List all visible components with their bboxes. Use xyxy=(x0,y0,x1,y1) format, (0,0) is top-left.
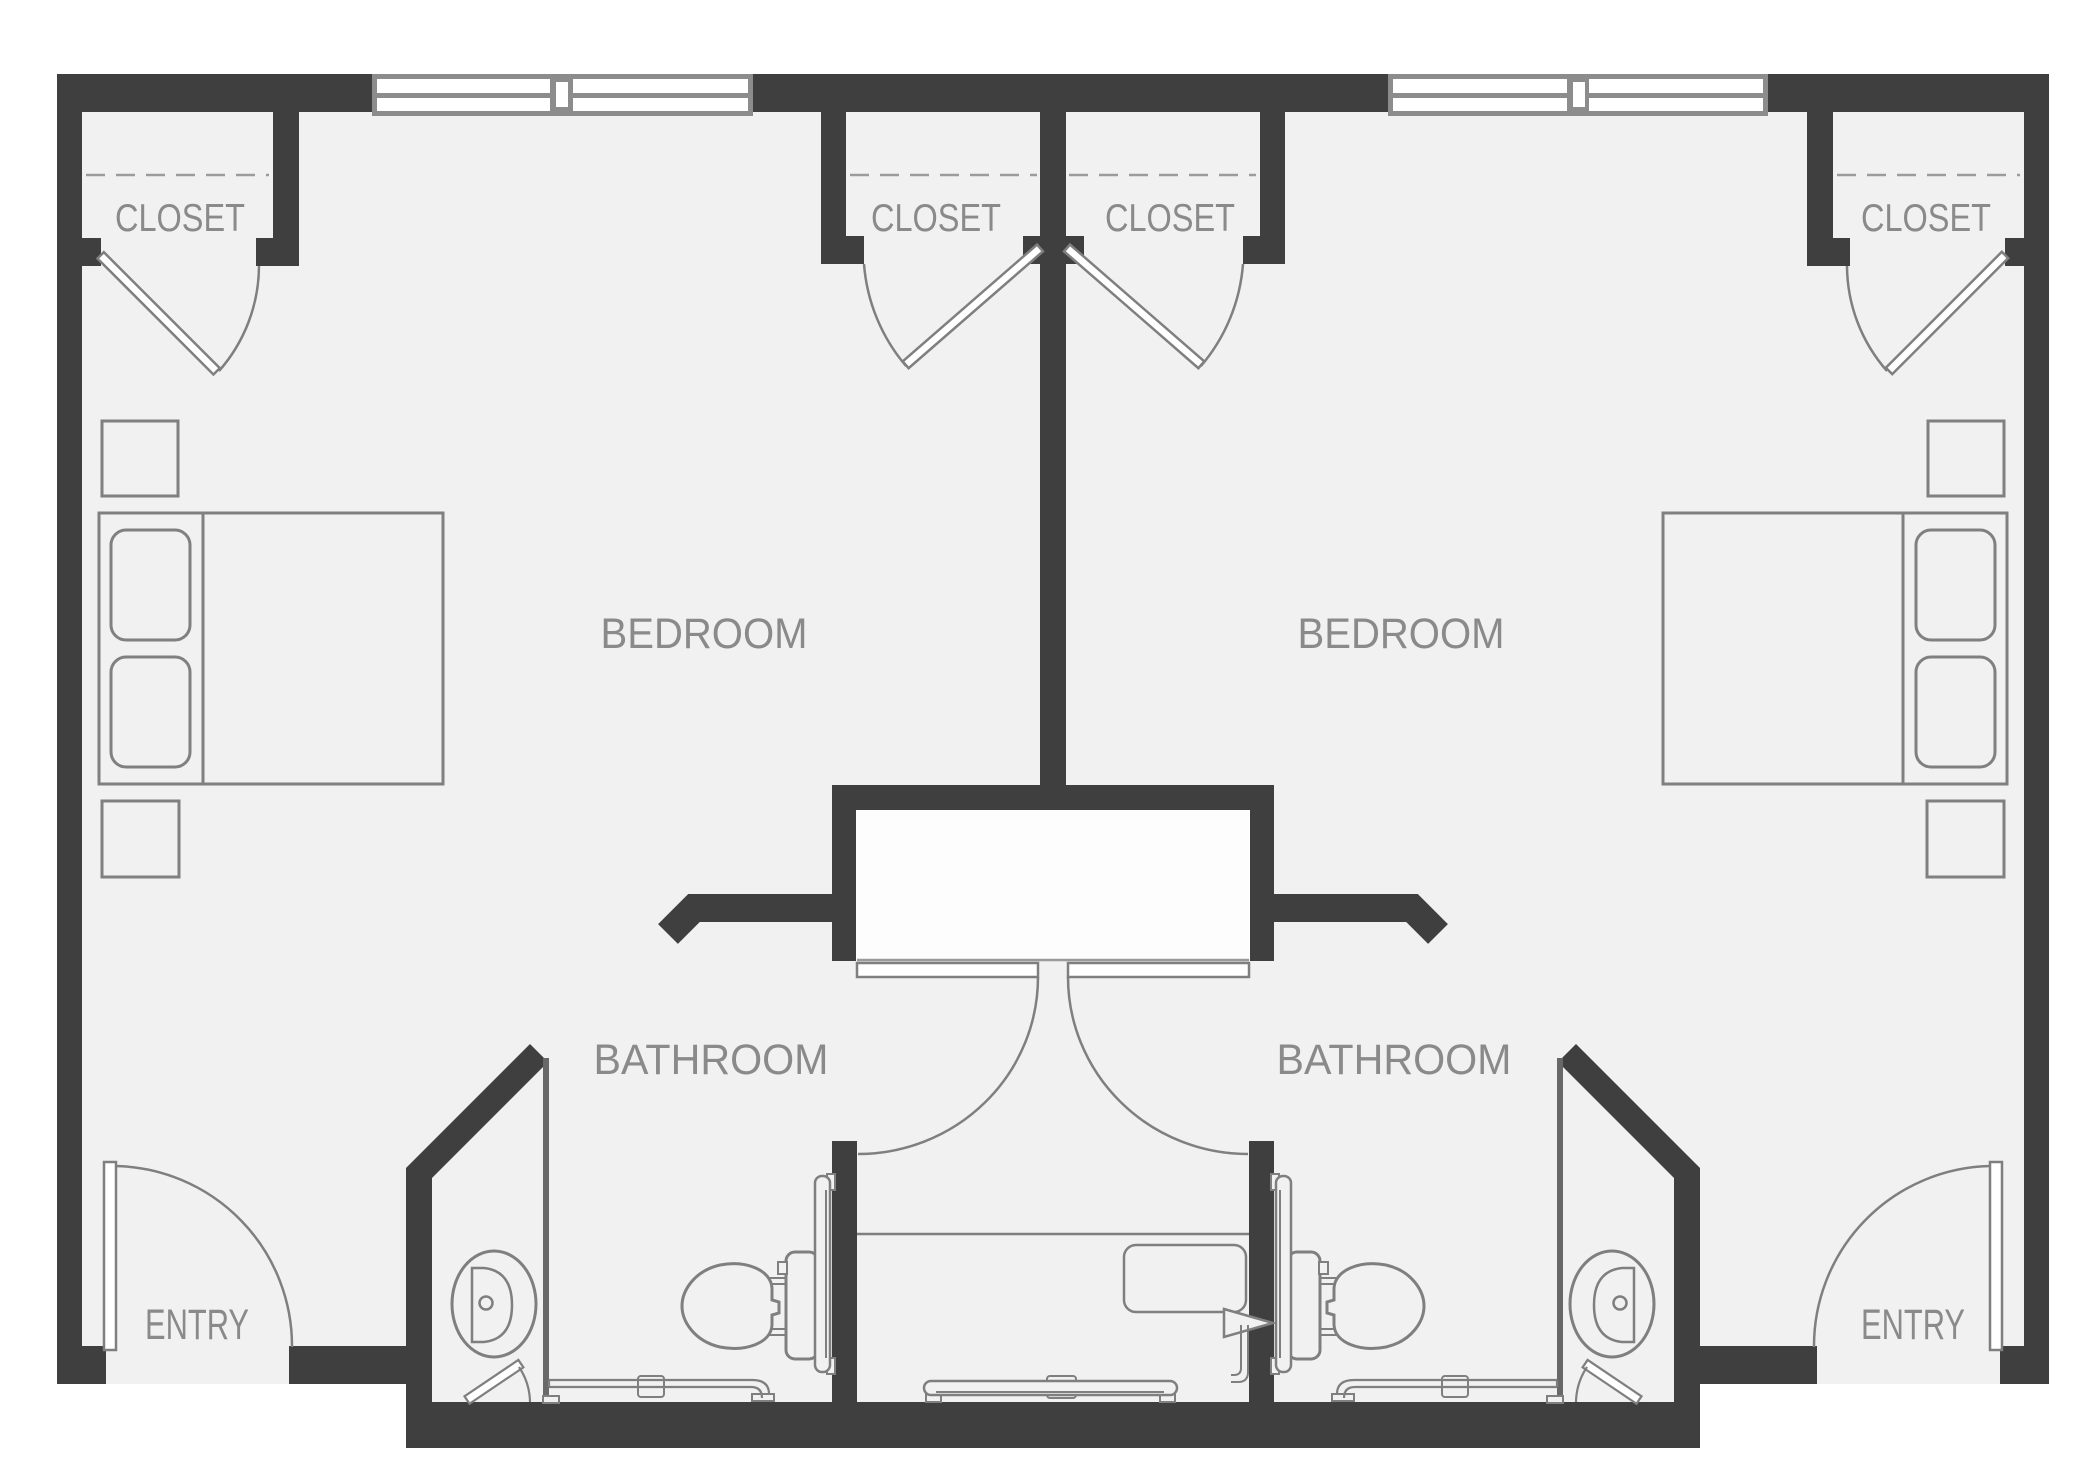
svg-text:BATHROOM: BATHROOM xyxy=(594,1036,829,1084)
svg-text:BEDROOM: BEDROOM xyxy=(1298,610,1505,658)
svg-text:ENTRY: ENTRY xyxy=(1861,1301,1965,1349)
svg-text:CLOSET: CLOSET xyxy=(115,197,245,240)
svg-text:CLOSET: CLOSET xyxy=(1861,197,1991,240)
svg-text:BATHROOM: BATHROOM xyxy=(1277,1036,1512,1084)
svg-text:ENTRY: ENTRY xyxy=(145,1301,249,1349)
svg-text:BEDROOM: BEDROOM xyxy=(601,610,808,658)
svg-text:CLOSET: CLOSET xyxy=(871,197,1001,240)
svg-text:CLOSET: CLOSET xyxy=(1105,197,1235,240)
